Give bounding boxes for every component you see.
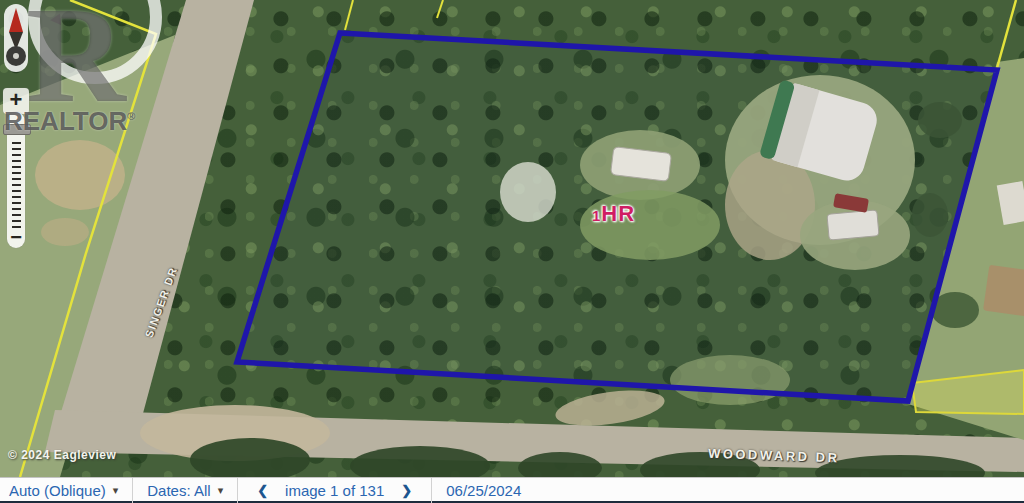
map-overlay	[0, 0, 1024, 477]
bottom-toolbar: Auto (Oblique) ▾ Dates: All ▾ ❮ image 1 …	[0, 477, 1024, 503]
view-mode-label: Auto (Oblique)	[9, 482, 106, 499]
shed-right-edge	[983, 265, 1024, 318]
aerial-imagery-viewer: SINGER DR WOODWARD DR 1HR © 2024 Eaglevi…	[0, 0, 1024, 503]
compass-north-needle-icon	[9, 8, 23, 32]
driveway	[553, 385, 666, 432]
image-capture-date: 06/25/2024	[432, 478, 535, 503]
caret-down-icon: ▾	[113, 485, 119, 496]
neighbor-boundary-top	[345, 0, 353, 30]
realtor-watermark-text: REALTOR	[4, 106, 127, 136]
image-pager: ❮ image 1 of 131 ❯	[238, 478, 431, 503]
zoom-out-button[interactable]: −	[7, 228, 25, 248]
property-marker-text: HR	[601, 201, 635, 226]
dates-filter-label: Dates: All	[147, 482, 210, 499]
image-counter: image 1 of 131	[285, 482, 384, 499]
imagery-copyright: © 2024 Eagleview	[8, 448, 116, 462]
previous-image-button[interactable]: ❮	[257, 483, 268, 498]
view-mode-dropdown[interactable]: Auto (Oblique) ▾	[0, 478, 132, 503]
property-marker-prefix: 1	[592, 207, 601, 224]
dates-filter-dropdown[interactable]: Dates: All ▾	[133, 478, 237, 503]
next-image-button[interactable]: ❯	[401, 483, 412, 498]
dry-grass-patch	[41, 218, 89, 246]
registered-trademark-symbol: ®	[127, 110, 135, 122]
property-marker: 1HR	[592, 201, 635, 227]
neighbor-boundary-topright	[997, 0, 1016, 68]
caret-down-icon: ▾	[218, 485, 224, 496]
aerial-map-viewport[interactable]: SINGER DR WOODWARD DR 1HR © 2024 Eaglevi…	[0, 0, 1024, 477]
zoom-slider-ticks	[12, 142, 21, 232]
compass-knob[interactable]	[6, 46, 26, 66]
realtor-watermark: REALTOR®	[4, 106, 135, 137]
neighbor-boundary-top	[437, 0, 443, 18]
